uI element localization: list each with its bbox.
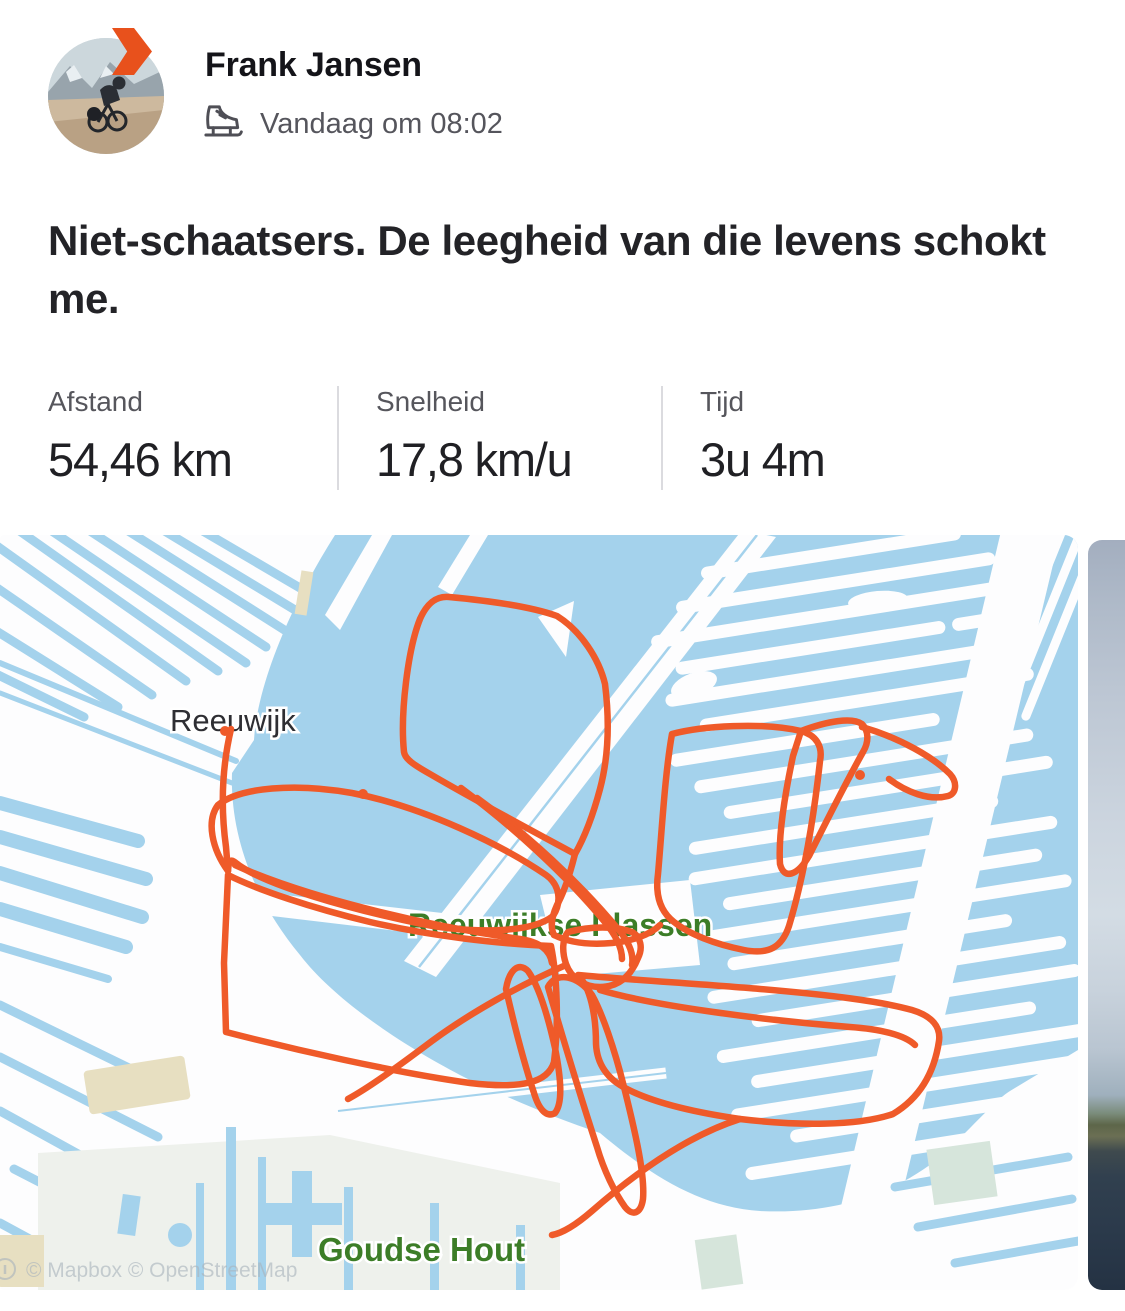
activity-title[interactable]: Niet-schaatsers. De leegheid van die lev… — [48, 212, 1080, 328]
stats-divider — [661, 386, 663, 490]
activity-meta-row: Vandaag om 08:02 — [201, 103, 503, 145]
stat-distance-label: Afstand — [48, 386, 337, 418]
stat-distance: Afstand 54,46 km — [48, 386, 337, 490]
stat-time-label: Tijd — [700, 386, 825, 418]
stat-speed: Snelheid 17,8 km/u — [376, 386, 661, 490]
stat-time-value: 3u 4m — [700, 434, 825, 486]
athlete-name[interactable]: Frank Jansen — [205, 46, 422, 85]
route-map[interactable]: Reeuwijk Reeuwijkse Plassen Goudse Hout — [0, 535, 1078, 1290]
activity-feed-card: Frank Jansen Vandaag om 08:02 Niet-schaa… — [0, 0, 1125, 1311]
ice-skate-icon — [201, 103, 245, 145]
map-label-forest: Goudse Hout — [318, 1231, 525, 1268]
activity-timestamp: Vandaag om 08:02 — [260, 108, 503, 141]
stat-distance-value: 54,46 km — [48, 434, 337, 486]
stats-divider — [337, 386, 339, 490]
stat-time: Tijd 3u 4m — [700, 386, 825, 490]
route-map-svg: Reeuwijk Reeuwijkse Plassen Goudse Hout — [0, 535, 1078, 1290]
stats-row: Afstand 54,46 km Snelheid 17,8 km/u Tijd… — [48, 386, 825, 490]
stat-speed-value: 17,8 km/u — [376, 434, 661, 486]
map-attribution[interactable]: © Mapbox © OpenStreetMap — [0, 1259, 297, 1282]
stat-speed-label: Snelheid — [376, 386, 661, 418]
attribution-text: © Mapbox © OpenStreetMap — [26, 1259, 297, 1282]
next-photo-sliver[interactable] — [1088, 540, 1125, 1290]
media-carousel: Reeuwijk Reeuwijkse Plassen Goudse Hout — [0, 535, 1125, 1290]
